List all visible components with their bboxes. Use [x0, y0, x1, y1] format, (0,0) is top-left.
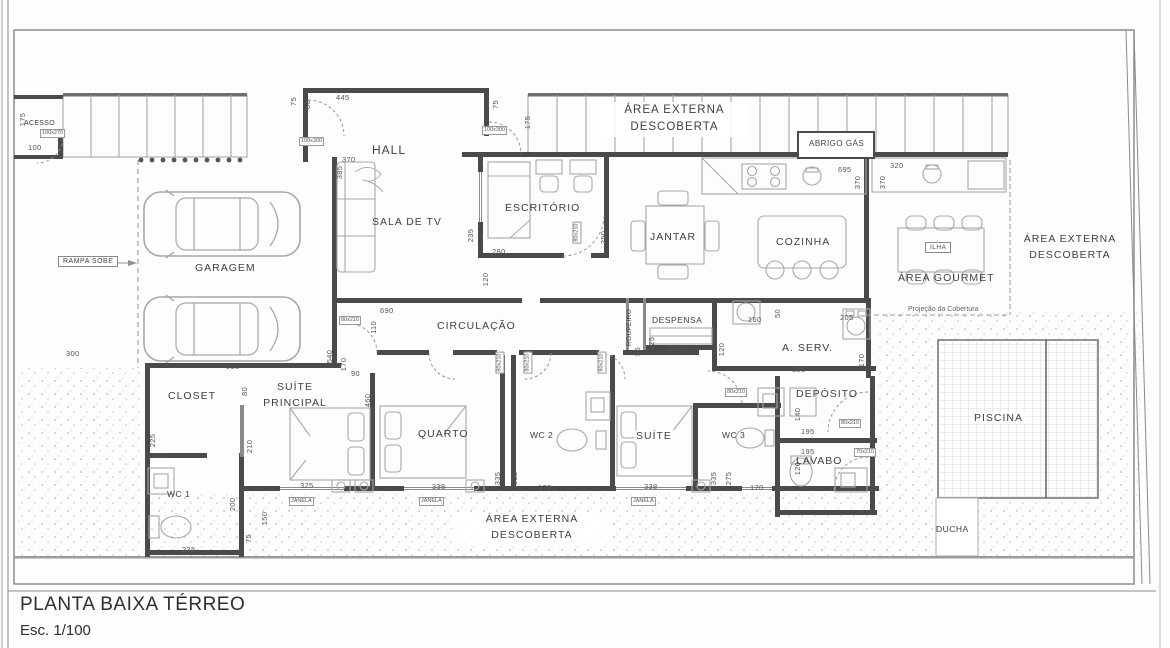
door-size-label: 100x270: [40, 129, 65, 138]
room-label-acesso: ACESSO: [24, 120, 55, 127]
dimension-label: 205: [840, 313, 853, 322]
dimension-label: 100: [28, 143, 41, 152]
ramp-label: RAMPA SOBE: [58, 256, 118, 267]
room-label-circulacao: CIRCULAÇÃO: [437, 320, 516, 332]
island-label: ILHA: [925, 242, 951, 253]
dimension-label: 370: [878, 176, 887, 189]
dimension-label: 170: [857, 354, 866, 367]
dimension-label: 380: [792, 365, 805, 374]
dimension-label: 275: [724, 472, 733, 485]
dimension-label: 60: [303, 100, 312, 109]
area-label-externa-top: ÁREA EXTERNA DESCOBERTA: [600, 102, 749, 137]
dimension-label: 125: [647, 337, 656, 350]
bed-quarto: [380, 406, 466, 478]
dimension-label: 150: [260, 512, 269, 525]
dimension-label: 120: [481, 273, 490, 286]
door-size-label: 100x300: [299, 137, 324, 146]
dimension-label: 90: [351, 369, 360, 378]
room-label-closet: CLOSET: [168, 390, 216, 402]
dimension-label: 195: [801, 427, 814, 436]
dimension-label: 120: [717, 343, 726, 356]
dimension-label: 110: [369, 321, 378, 334]
dimension-label: 120: [793, 462, 802, 475]
dimension-label: 75: [491, 100, 500, 109]
window-label: JANELA: [419, 497, 444, 506]
dimension-label: 335: [493, 472, 502, 485]
windows: [280, 172, 772, 491]
wardrobe-label: ROUPEIRO: [626, 309, 633, 346]
area-label-externa-bottom: ÁREA EXTERNA DESCOBERTA: [455, 512, 609, 544]
dimension-label: 55: [633, 347, 642, 356]
room-label-wc1: WC 1: [167, 489, 190, 499]
dimension-label: 235: [182, 545, 195, 554]
door-size-label: 80x210: [495, 352, 504, 374]
dimension-label: 75: [244, 534, 253, 543]
bed-suite-principal: [290, 408, 370, 480]
room-label-piscina: PISCINA: [972, 412, 1025, 424]
dimension-label: 325: [300, 481, 313, 490]
dimension-label: 300: [66, 349, 79, 358]
room-label-wc2: WC 2: [530, 430, 553, 440]
room-label-hall: HALL: [372, 143, 406, 157]
room-label-area-gourmet: ÁREA GOURMET: [898, 272, 995, 284]
door-size-label: 70x210: [854, 448, 876, 457]
dimension-label: 370: [342, 155, 355, 164]
dimension-label: 370: [853, 176, 862, 189]
dimension-label: 280: [492, 247, 505, 256]
dimension-label: 500: [226, 362, 239, 371]
room-label-escritorio: ESCRITÓRIO: [505, 202, 580, 214]
room-label-garagem: GARAGEM: [195, 262, 256, 274]
room-label-jantar: JANTAR: [650, 231, 696, 243]
dimension-label: 335: [709, 472, 718, 485]
room-label-despensa: DESPENSA: [652, 315, 702, 325]
room-label-suite: SUÍTE: [634, 430, 674, 442]
dimension-label: 50: [773, 309, 782, 318]
dimension-label: 225: [148, 434, 157, 447]
area-label-externa-right: ÁREA EXTERNA DESCOBERTA: [1005, 232, 1135, 264]
room-label-cozinha: COZINHA: [774, 236, 832, 248]
roof-projection-label: Projeção da Cobertura: [908, 306, 978, 313]
roof-projection: [866, 160, 1010, 315]
title-block: PLANTA BAIXA TÉRREO Esc. 1/100: [20, 594, 245, 639]
dimension-label: 335: [510, 472, 519, 485]
dimension-label: 160: [748, 315, 761, 324]
room-label-suite-principal: SUÍTE PRINCIPAL: [258, 380, 332, 412]
dimension-label: 540: [325, 350, 334, 363]
gas-shelter-label: ABRIGO GÁS: [805, 138, 868, 149]
dimension-label: 140: [793, 408, 802, 421]
room-label-deposito: DEPÓSITO: [796, 388, 858, 400]
room-label-sala-tv: SALA DE TV: [372, 216, 442, 228]
room-label-a-serv: A. SERV.: [782, 342, 833, 354]
door-size-label: 80x210: [597, 352, 606, 374]
dimension-label: 170: [339, 358, 348, 371]
door-size-label: 80x210: [839, 419, 861, 428]
dimension-label: 690: [380, 306, 393, 315]
door-size-label: 80x210: [725, 388, 747, 397]
dimension-label: 385: [335, 166, 344, 179]
dimension-label: 235: [466, 229, 475, 242]
plan-scale: Esc. 1/100: [20, 622, 245, 639]
door-size-label: 80x210: [523, 352, 532, 374]
dimension-label: 80: [240, 387, 249, 396]
door-size-label: 80x210: [572, 222, 581, 244]
room-label-wc3: WC 3: [722, 430, 745, 440]
dimension-label: 165: [668, 344, 681, 353]
window-label: JANELA: [289, 497, 314, 506]
dimension-label: 320: [890, 161, 903, 170]
floorplan-drawing: [0, 0, 1170, 648]
dimension-label: 200: [228, 498, 237, 511]
dimension-label: 210: [245, 440, 254, 453]
floor-plan-page: ACESSO GARAGEM HALL SALA DE TV ESCRITÓRI…: [0, 0, 1170, 648]
dimension-label: 695: [838, 165, 851, 174]
dimension-label: 175: [18, 113, 27, 126]
dimension-label: 75: [289, 97, 298, 106]
plan-title: PLANTA BAIXA TÉRREO: [20, 594, 245, 616]
door-size-label: 80x210: [339, 316, 361, 325]
dimension-label: 445: [336, 93, 349, 102]
room-label-lavabo: LAVABO: [796, 455, 842, 467]
dimension-label: 235: [153, 451, 166, 460]
dimension-label: 338: [432, 482, 445, 491]
dimension-label: 460: [363, 394, 372, 407]
dimension-label: 170: [750, 483, 763, 492]
dimension-label: 195: [801, 447, 814, 456]
dimension-label: 338: [644, 482, 657, 491]
dimension-label: 170: [538, 483, 551, 492]
dimension-label: 250: [599, 231, 608, 244]
dimension-label: 175: [523, 116, 532, 129]
room-label-quarto: QUARTO: [418, 428, 469, 440]
window-label: JANELA: [631, 497, 656, 506]
door-size-label: 100x300: [482, 126, 507, 135]
room-label-ducha: DUCHA: [936, 524, 969, 534]
